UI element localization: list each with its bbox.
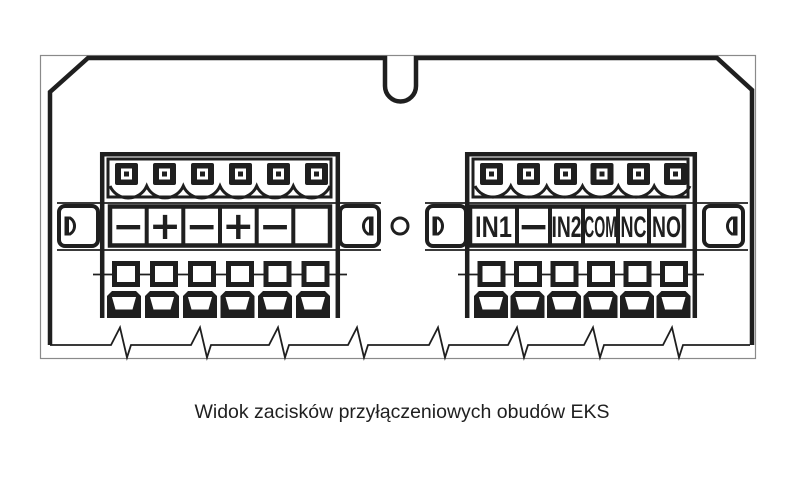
screw-terminal [627,163,650,185]
power-terminal-block: − + − + − [93,154,347,318]
wire-entry-square [115,264,138,285]
terminal-label: − [112,204,144,248]
terminal-label: COM [584,211,617,244]
connector-opening [511,291,545,318]
screw-terminal [191,163,214,185]
io-terminal-block: IN1 − IN2 COM NC NO [458,154,704,318]
figure-canvas: − + − + − [0,0,804,483]
wire-entry-square [663,264,686,285]
terminal-label: NC [621,211,647,244]
wire-entry-square [153,264,176,285]
connector-opening [474,291,508,318]
connector-opening [584,291,618,318]
connector-opening [145,291,179,318]
break-line [50,328,750,358]
terminal-label: − [186,204,218,248]
figure-caption: Widok zacisków przyłączeniowych obudów E… [0,401,804,424]
screw-terminal [664,163,687,185]
io-label-strip: IN1 − IN2 COM NC NO [470,204,684,248]
wire-entry-square [191,264,214,285]
connector-opening [221,291,255,318]
screw-terminal [229,163,252,185]
mounting-tab [704,206,743,246]
power-label-strip: − + − + − [110,204,330,248]
screw-terminal [115,163,138,185]
connector-opening [258,291,292,318]
wire-entry-square [480,264,503,285]
terminal-label: IN1 [475,211,512,244]
terminal-label: IN2 [552,211,582,244]
screw-terminal [153,163,176,185]
screw-terminal [517,163,540,185]
screw-terminal [554,163,577,185]
terminal-label: − [259,204,291,248]
mounting-tab [427,206,466,246]
wire-entry-square [229,264,252,285]
screw-terminal [591,163,614,185]
connector-opening [107,291,141,318]
screw-terminal [480,163,503,185]
wire-entry-square [626,264,649,285]
wire-entry-square [553,264,576,285]
mounting-tab [340,206,379,246]
terminal-label: − [518,204,550,248]
connector-opening [620,291,654,318]
connector-opening [183,291,217,318]
screw-terminal [267,163,290,185]
wire-entry-square [304,264,327,285]
center-hole [392,218,408,234]
connector-opening [657,291,691,318]
wire-entry-square [266,264,289,285]
wire-entry-square [590,264,613,285]
terminal-label: NO [652,211,681,244]
connector-opening [547,291,581,318]
wire-entry-square [517,264,540,285]
mounting-tab [59,206,98,246]
connector-opening [296,291,330,318]
terminal-label: + [149,204,181,248]
screw-terminal [305,163,328,185]
terminal-label: + [222,204,254,248]
